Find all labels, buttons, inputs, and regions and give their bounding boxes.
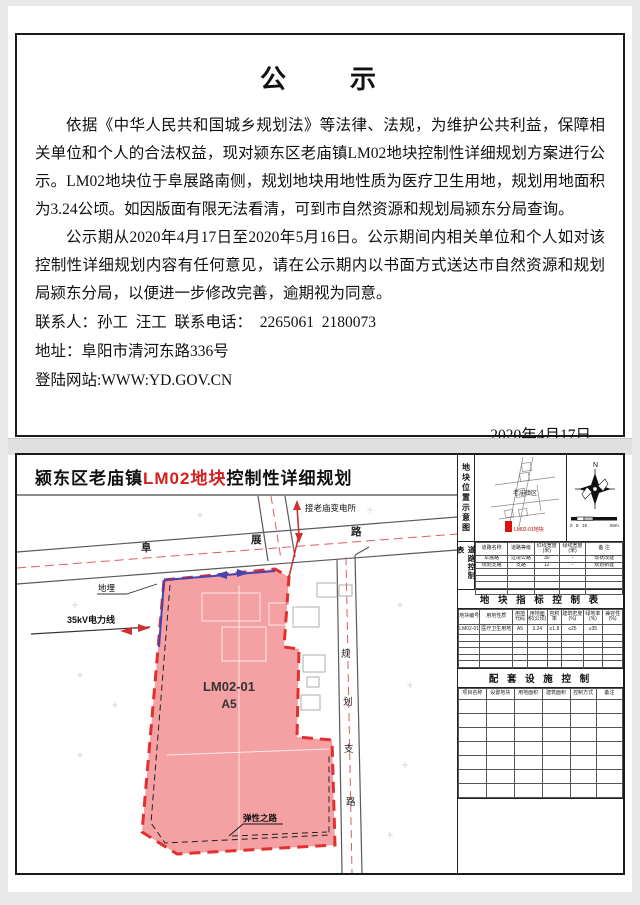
index-control-table: 地块编号用地性质用地代码用地面积(公顷)容积率建筑密度(%)绿地率(%)兼容性(…: [458, 609, 623, 668]
parcel-code-label: LM02-01: [203, 679, 255, 694]
power-line-label: 35kV电力线: [67, 614, 115, 625]
public-notice-panel: 公 示 依据《中华人民共和国城乡规划法》等法律、法规，为维护公共利益，保障相关单…: [15, 33, 625, 437]
plan-title-suffix: 控制性详细规划: [226, 469, 352, 488]
compass-cell: N: [567, 455, 623, 541]
scale-tick-0: 0: [570, 523, 573, 528]
substation-arrow-up: [293, 500, 301, 510]
inset-parcel-marker: [505, 521, 512, 532]
compass-svg: N: [567, 455, 623, 541]
scale-tick-labels: 0 5 15 50m: [570, 523, 619, 528]
index-table-title: 地 块 指 标 控 制 表: [458, 590, 623, 609]
location-inset-map: 老庙镇区 LM02-01地块: [475, 455, 567, 541]
notice-paragraph-2: 公示期从2020年4月17日至2020年5月16日。公示期间内相关单位和个人如对…: [35, 224, 605, 308]
road-control-row: 道路控制表 道路名称道路等级红线宽度(米)绿线宽度(米)备 注阜展路过境公路30…: [458, 542, 623, 590]
fuzhan-road-centerline: [17, 534, 457, 568]
north-road-centerline: [271, 496, 281, 559]
index-control-section: 地 块 指 标 控 制 表 地块编号用地性质用地代码用地面积(公顷)容积率建筑密…: [458, 590, 623, 669]
notice-title: 公 示: [35, 59, 605, 96]
scale-tick-5: 5: [576, 523, 579, 528]
inset-marker-label: LM02-01地块: [514, 526, 544, 533]
contact-line: 联系人：孙工 汪工 联系电话： 2265061 2180073: [35, 308, 605, 337]
compass-rose-icon: [575, 469, 615, 509]
inset-town-label: 老庙镇区: [513, 489, 537, 497]
road-char-zhan: 展: [251, 534, 262, 546]
power-line-35kv: [31, 624, 150, 635]
plan-drawing-area: 颍东区老庙镇LM02地块控制性详细规划: [17, 455, 457, 873]
road-control-table: 道路名称道路等级红线宽度(米)绿线宽度(米)备 注阜展路过境公路30-现状改建规…: [475, 542, 623, 595]
branch-char-hua: 划: [343, 696, 353, 708]
branch-char-gui: 规: [341, 649, 351, 660]
plan-map-panel: 颍东区老庙镇LM02地块控制性详细规划: [15, 453, 625, 875]
road-char-lu: 路: [351, 525, 362, 538]
location-row: 地块位置示意图: [458, 455, 623, 542]
compass-n-label: N: [593, 462, 598, 469]
buried-label: 地埋: [98, 583, 116, 593]
website-line: 登陆网站:WWW:YD.GOV.CN: [35, 366, 605, 395]
plan-title-highlight: LM02地块: [143, 469, 226, 488]
inset-map-svg: 老庙镇区 LM02-01地块: [475, 455, 567, 541]
existing-buildings: [293, 583, 352, 710]
road-char-fu: 阜: [141, 541, 152, 554]
elastic-road-label: 弹性之路: [243, 813, 278, 823]
plan-title-prefix: 颍东区老庙镇: [35, 469, 143, 488]
substation-label: 接老庙变电所: [305, 503, 357, 513]
location-diagram-title: 地块位置示意图: [458, 455, 475, 541]
scale-bar-icon: [571, 517, 617, 521]
parcel-class-label: A5: [221, 697, 237, 711]
road-table-title: 道路控制表: [458, 542, 475, 589]
facility-table-title: 配 套 设 施 控 制: [458, 669, 623, 688]
scale-tick-15: 15: [582, 523, 588, 528]
paper-sheet: 公 示 依据《中华人民共和国城乡规划法》等法律、法规，为维护公共利益，保障相关单…: [8, 6, 632, 892]
branch-road-centerline: [346, 557, 352, 873]
plan-map-svg: 接老庙变电所 35kV电力线 地埋 阜 展 路: [17, 455, 457, 873]
address-line: 地址：阜阳市清河东路336号: [35, 337, 605, 366]
branch-char-lu2: 路: [346, 796, 356, 808]
notice-paragraph-1: 依据《中华人民共和国城乡规划法》等法律、法规，为维护公共利益，保障相关单位和个人…: [35, 112, 605, 224]
power-arrow-right: [138, 624, 150, 632]
facility-control-section: 配 套 设 施 控 制 项目名称设置地块用地面积建筑面积控制方式备注: [458, 669, 623, 799]
substation-feed-line: [289, 500, 303, 577]
facility-control-table: 项目名称设置地块用地面积建筑面积控制方式备注: [458, 688, 623, 798]
branch-char-zhi: 支: [344, 743, 354, 755]
scale-tick-50m: 50m: [610, 523, 619, 528]
substation-arrow-down: [295, 533, 303, 543]
plan-title: 颍东区老庙镇LM02地块控制性详细规划: [35, 464, 352, 489]
plan-sidebar: 地块位置示意图: [457, 455, 623, 873]
